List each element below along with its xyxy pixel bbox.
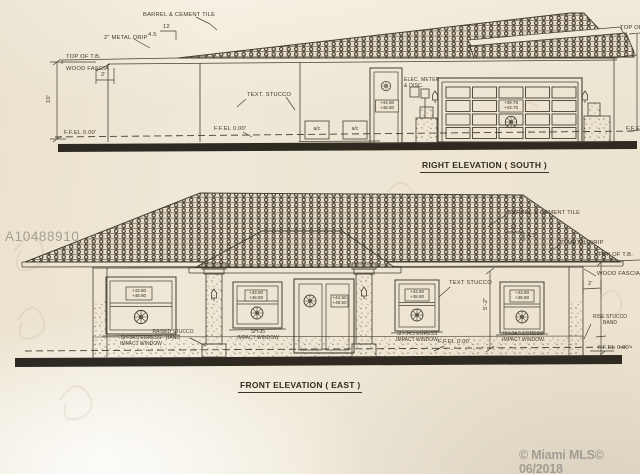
metal-drip-label: 2" METAL DRIP [560, 240, 604, 246]
front-elevation-title: FRONT ELEVATION ( EAST ) [238, 380, 362, 393]
caption-line: IMPACT WINDOW [396, 337, 438, 343]
corner-quoins [584, 103, 610, 142]
top-of-tb-label: TOP OF T.B. [598, 252, 633, 258]
datum-line: +48.80 [249, 296, 263, 301]
caption-line: IMPACT WINDOW [502, 337, 544, 343]
wood-fascia-label: WOOD FASCIA [597, 271, 640, 277]
top-of-partial-label: TOP OF [620, 25, 640, 31]
coach-lamp-icon [582, 91, 587, 103]
window-datum-tag: +43.80 +48.80 [245, 290, 267, 301]
window-datum-tag: +43.80 +48.80 [126, 287, 152, 300]
entry-window-caption: SH-35 IMPACT WINDOW [228, 330, 288, 341]
window-height-dim-label: 5'-2" [483, 297, 489, 310]
overhang-dim-label: 2' [101, 72, 106, 78]
datum-line: +48.50 [380, 106, 394, 111]
egress-window [391, 280, 443, 333]
datum-line: +43.75 [504, 106, 518, 111]
elec-meter-label: & DISC. [404, 84, 423, 89]
ffel-label: F.F.EL 0.00' [598, 345, 630, 351]
garage-datum-tag: +39.75 +43.75 [499, 100, 523, 112]
egress-window-caption: SH-34.5 EGRESS IMPACT WINDOW [98, 336, 184, 347]
caption-line: IMPACT WINDOW [237, 335, 279, 341]
ffe-partial-label: F.F.E [626, 126, 640, 132]
roof-pitch-rise: 4.5 [148, 32, 157, 38]
barrel-tile-label: BARREL & CEMENT TILE [143, 12, 215, 18]
egress-window-caption: SH-34.5 EGRESS IMPACT WINDOW [386, 332, 448, 343]
right-elevation-title: RIGHT ELEVATION ( SOUTH ) [420, 160, 549, 173]
roof-pitch-rise: 4.5 [527, 233, 536, 239]
wall-height-dim-label: 10' [46, 95, 52, 103]
ffel-label: F.F.EL 0.00' [214, 126, 246, 132]
ffel-label: F.F.EL 0.00' [64, 130, 96, 136]
stucco-pilaster [416, 107, 437, 143]
datum-line: +48.80 [410, 295, 424, 300]
ac-unit-label: a/c [309, 127, 325, 133]
datum-line: +48.80 [132, 294, 146, 299]
label-line: BAND [603, 320, 617, 326]
window-datum-tag: +43.80 +48.80 [405, 289, 429, 301]
window-datum-tag: +43.80 +48.80 [510, 290, 534, 302]
mls-id-watermark: A10488910 [5, 229, 79, 244]
rise-stucco-band-label: RISE STUCCO BAND [586, 315, 634, 326]
roof-pitch-run: 12 [510, 225, 517, 231]
metal-drip-label: 2" METAL DRIP [104, 35, 148, 41]
text-stucco-label: TEXT STUCCO [449, 280, 492, 286]
text-stucco-label: TEXT. STUCCO [247, 92, 291, 98]
overhang-dim-label: 2' [588, 281, 593, 287]
caption-line: IMPACT WINDOW [120, 341, 162, 347]
entry-column [202, 263, 226, 357]
datum-line: +48.80 [515, 296, 529, 301]
roof-pitch-run: 12 [163, 24, 170, 30]
top-of-tb-label: TOP OF T.B. [66, 54, 101, 60]
blueprint-photo: BARREL & CEMENT TILE 2" METAL DRIP 12 4.… [0, 0, 640, 474]
coach-lamp-icon [432, 91, 437, 103]
mls-copyright-watermark: © Miami MLS© 06/2018 [519, 448, 640, 474]
door-datum-tag: +44.50 +48.50 [331, 295, 348, 307]
egress-window-caption: SH-34.5 EGRESS IMPACT WINDOW [494, 332, 552, 343]
entry-column [352, 263, 376, 357]
right-elevation-drawing [50, 13, 640, 152]
door-datum-tag: +44.50 +48.50 [376, 100, 399, 112]
egress-window [102, 277, 180, 336]
ac-unit-label: a/c [347, 127, 363, 133]
datum-line: +48.50 [332, 301, 346, 306]
ground-line [58, 141, 637, 152]
barrel-tile-label: BARREL & CEMENT TILE [508, 210, 580, 216]
